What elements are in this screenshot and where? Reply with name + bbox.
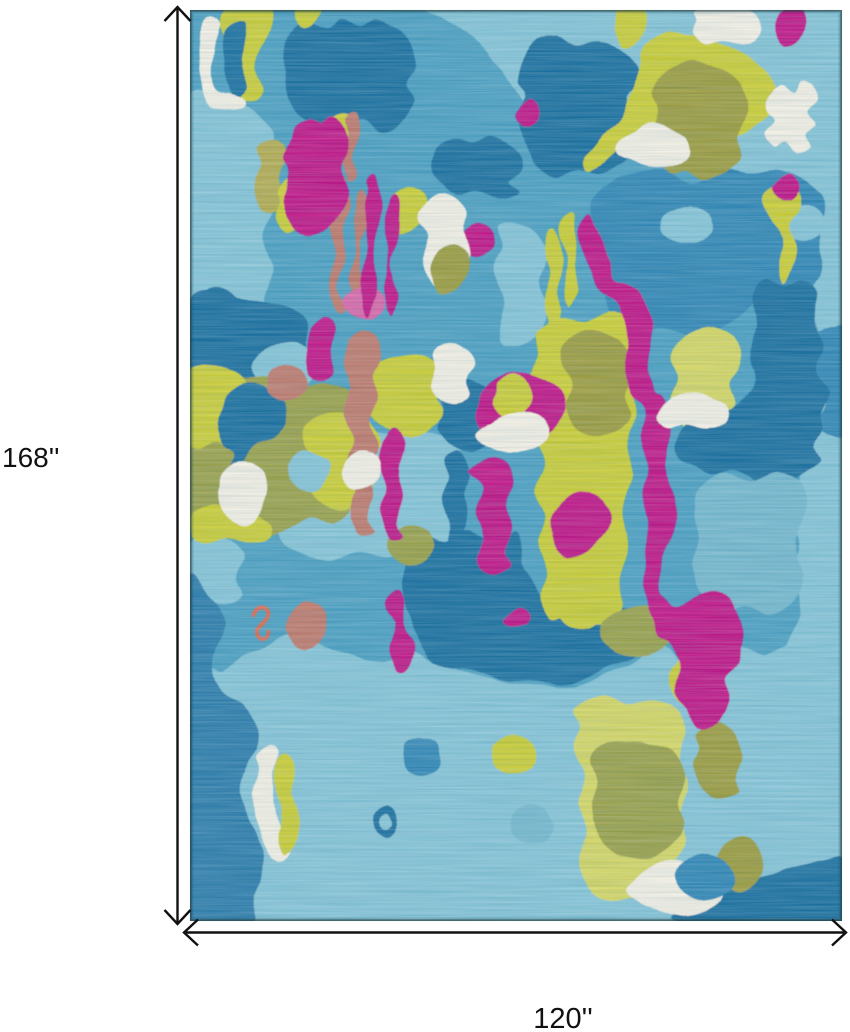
svg-text:168'': 168'' <box>2 442 59 473</box>
svg-text:120'': 120'' <box>533 1003 592 1032</box>
